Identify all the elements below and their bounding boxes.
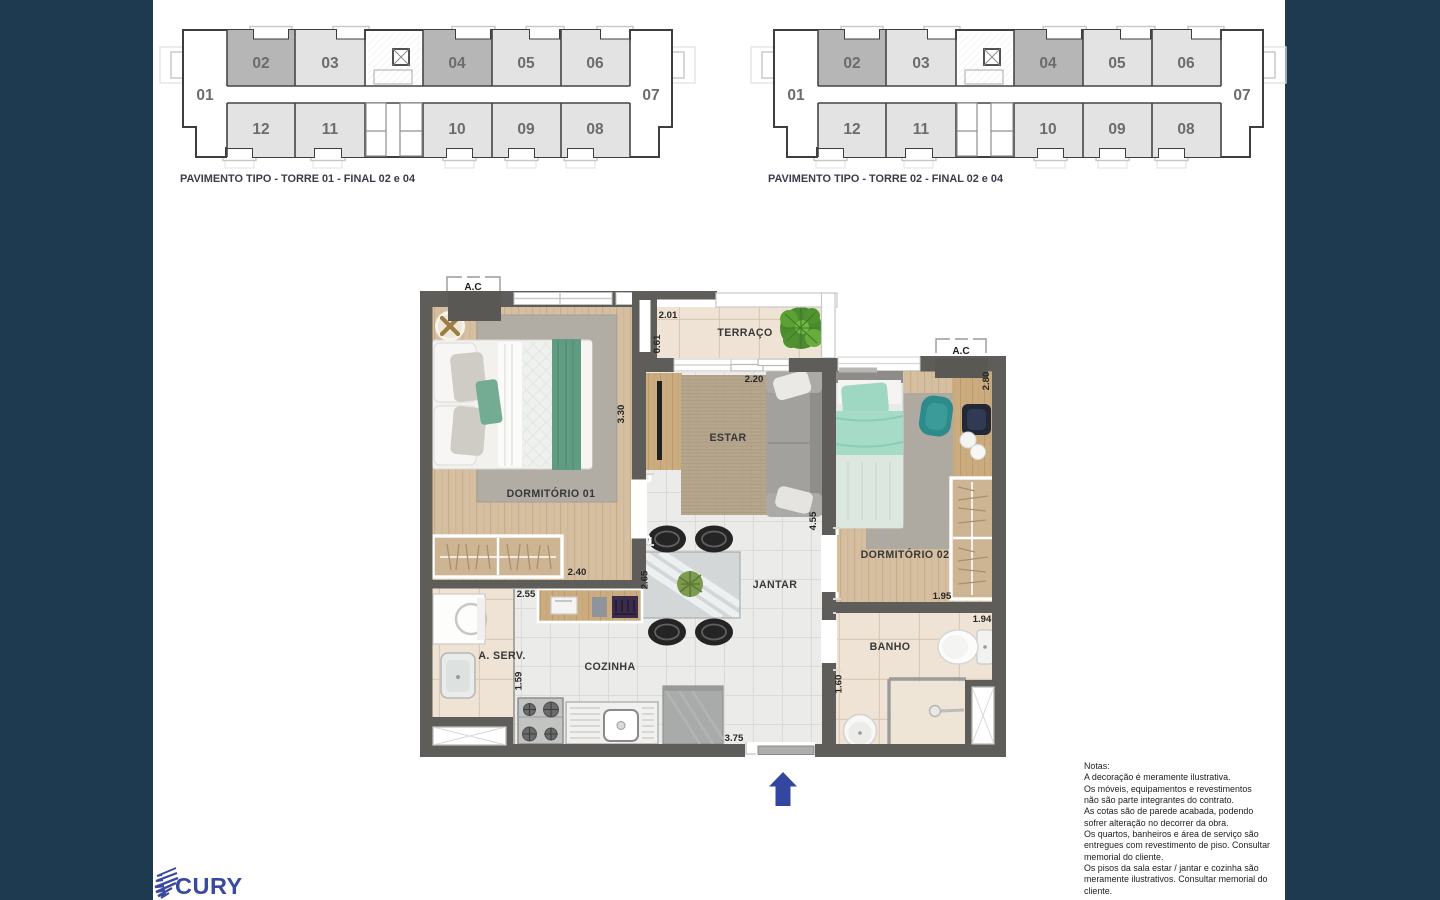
svg-text:3.75: 3.75 [725, 733, 744, 744]
svg-text:ESTAR: ESTAR [709, 432, 746, 444]
svg-text:BANHO: BANHO [870, 641, 911, 653]
svg-text:1.94: 1.94 [973, 614, 992, 625]
svg-text:03: 03 [321, 55, 339, 72]
svg-text:PAVIMENTO TIPO - TORRE 01 - FI: PAVIMENTO TIPO - TORRE 01 - FINAL 02 e 0… [180, 173, 415, 185]
svg-text:DORMITÓRIO 02: DORMITÓRIO 02 [861, 548, 950, 561]
svg-text:1.60: 1.60 [834, 675, 845, 694]
svg-text:0.61: 0.61 [652, 334, 663, 353]
svg-text:04: 04 [448, 55, 466, 72]
svg-text:09: 09 [517, 121, 535, 138]
svg-text:A. SERV.: A. SERV. [478, 650, 525, 662]
svg-text:01: 01 [196, 87, 214, 104]
svg-text:07: 07 [642, 87, 659, 104]
svg-text:3.30: 3.30 [616, 405, 627, 424]
svg-text:1.59: 1.59 [514, 672, 525, 691]
svg-text:2.01: 2.01 [659, 310, 678, 321]
svg-text:10: 10 [448, 121, 465, 138]
svg-text:2.55: 2.55 [517, 589, 536, 600]
svg-text:2.65: 2.65 [640, 570, 651, 589]
svg-text:1.95: 1.95 [933, 591, 952, 602]
svg-text:DORMITÓRIO 01: DORMITÓRIO 01 [507, 487, 596, 500]
svg-text:06: 06 [586, 55, 604, 72]
svg-text:TERRAÇO: TERRAÇO [717, 327, 772, 339]
svg-text:JANTAR: JANTAR [753, 579, 798, 591]
svg-text:2.80: 2.80 [981, 372, 992, 391]
svg-text:12: 12 [252, 121, 269, 138]
svg-text:08: 08 [586, 121, 604, 138]
svg-text:11: 11 [322, 121, 339, 138]
svg-text:A.C: A.C [464, 282, 481, 293]
svg-text:A.C: A.C [952, 346, 969, 357]
svg-text:2.20: 2.20 [745, 374, 764, 385]
svg-text:PAVIMENTO TIPO - TORRE 02 - FI: PAVIMENTO TIPO - TORRE 02 - FINAL 02 e 0… [768, 173, 1003, 185]
svg-text:2.40: 2.40 [568, 567, 587, 578]
svg-text:4.55: 4.55 [808, 511, 819, 530]
svg-text:CURY: CURY [175, 873, 243, 899]
svg-text:05: 05 [517, 55, 535, 72]
svg-text:COZINHA: COZINHA [584, 661, 635, 673]
svg-text:02: 02 [252, 55, 269, 72]
